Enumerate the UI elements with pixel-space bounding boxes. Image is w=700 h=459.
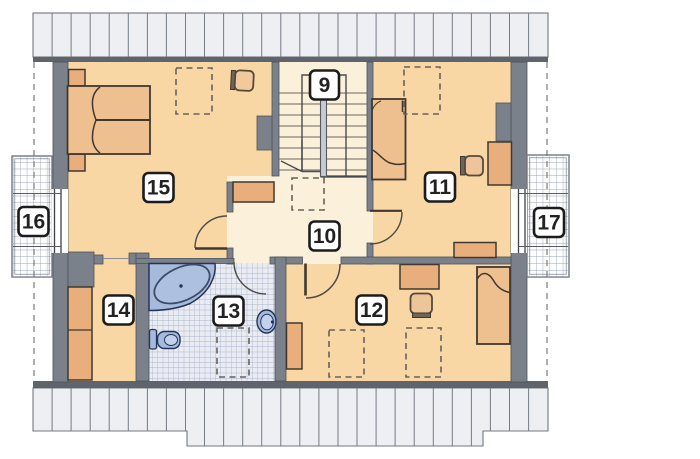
svg-text:15: 15 (147, 177, 171, 200)
svg-text:14: 14 (107, 299, 131, 322)
svg-text:10: 10 (313, 225, 336, 248)
svg-text:11: 11 (429, 176, 452, 199)
svg-text:16: 16 (22, 211, 45, 234)
svg-text:13: 13 (217, 300, 240, 323)
svg-text:12: 12 (360, 299, 383, 322)
svg-text:9: 9 (319, 74, 331, 97)
svg-text:17: 17 (537, 212, 560, 235)
